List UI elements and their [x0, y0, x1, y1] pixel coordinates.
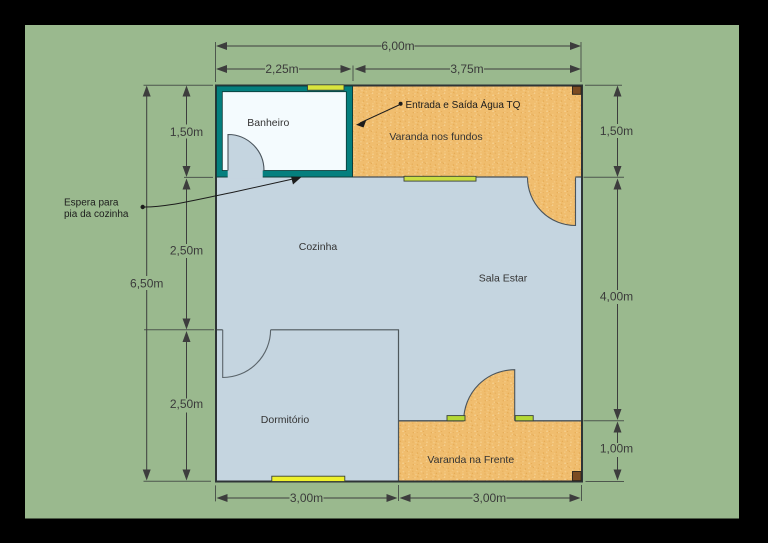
svg-text:3,75m: 3,75m	[450, 62, 483, 76]
svg-text:2,25m: 2,25m	[265, 62, 298, 76]
svg-text:6,00m: 6,00m	[381, 39, 414, 53]
svg-text:Sala Estar: Sala Estar	[479, 273, 528, 285]
svg-text:pia da cozinha: pia da cozinha	[64, 209, 129, 220]
svg-text:6,50m: 6,50m	[130, 276, 163, 290]
svg-text:1,50m: 1,50m	[170, 125, 203, 139]
svg-text:1,00m: 1,00m	[600, 441, 633, 455]
svg-text:Varanda nos fundos: Varanda nos fundos	[389, 131, 482, 143]
svg-text:Dormitório: Dormitório	[261, 414, 310, 426]
svg-text:Cozinha: Cozinha	[299, 241, 338, 253]
svg-text:3,00m: 3,00m	[290, 491, 323, 505]
svg-text:Espera para: Espera para	[64, 198, 119, 209]
svg-text:3,00m: 3,00m	[473, 491, 506, 505]
svg-text:Banheiro: Banheiro	[247, 117, 289, 129]
svg-text:2,50m: 2,50m	[170, 244, 203, 258]
svg-text:4,00m: 4,00m	[600, 289, 633, 303]
svg-text:1,50m: 1,50m	[600, 124, 633, 138]
svg-text:Entrada e Saída Água TQ: Entrada e Saída Água TQ	[406, 98, 521, 111]
svg-text:Varanda na Frente: Varanda na Frente	[427, 454, 514, 466]
svg-text:2,50m: 2,50m	[170, 397, 203, 411]
